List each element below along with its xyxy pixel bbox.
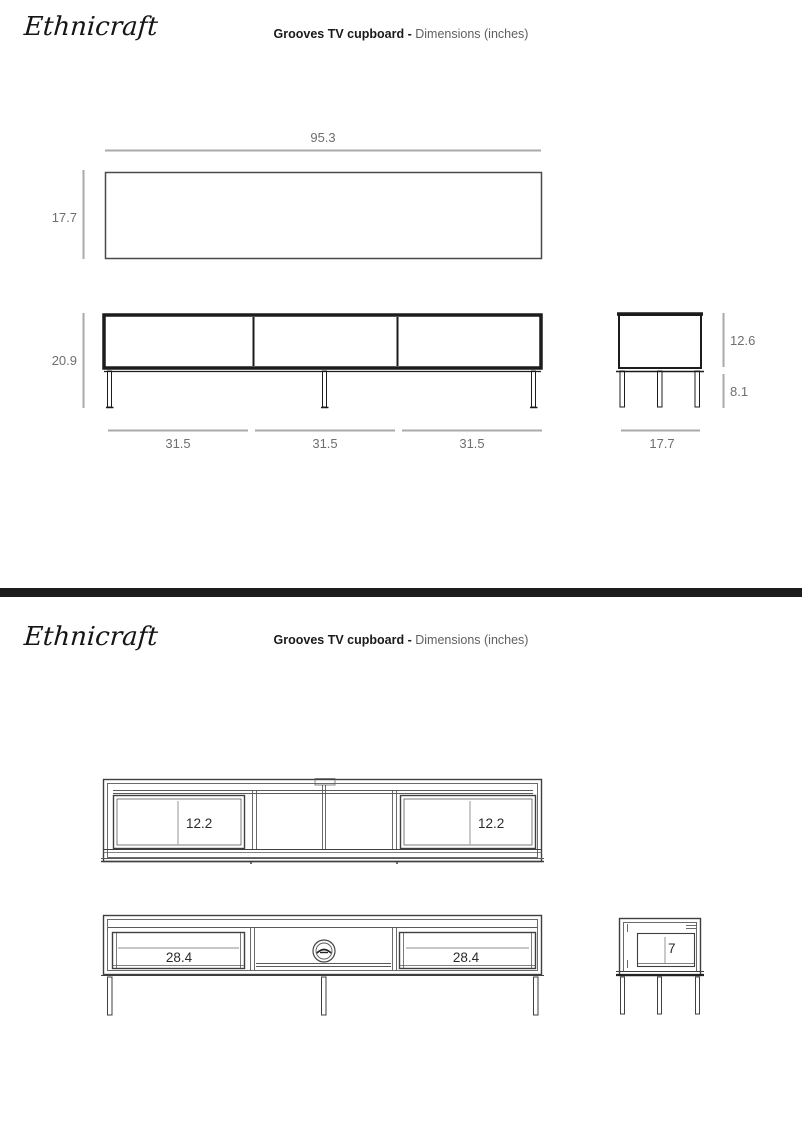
dim-drawer-depth: 12.2 [478, 816, 504, 831]
dim-drawer-width: 28.4 [139, 950, 219, 965]
p2-front-view [101, 916, 544, 1016]
p1-front-view [84, 313, 543, 431]
dim-top-depth: 17.7 [38, 210, 77, 225]
dim-drawer-width: 28.4 [426, 950, 506, 965]
dim-top-width: 95.3 [273, 130, 373, 145]
dim-side-depth: 17.7 [622, 436, 702, 451]
dim-drawer-height: 7 [668, 941, 676, 956]
p1-side-view [616, 313, 724, 431]
dim-side-body-height: 12.6 [730, 333, 755, 348]
spec-sheet: Ethnicraft Grooves TV cupboard - Dimensi… [0, 0, 802, 1146]
dim-drawer-depth: 12.2 [186, 816, 212, 831]
left-drawer-box [114, 796, 245, 849]
technical-drawing [0, 0, 802, 1146]
dim-side-leg-height: 8.1 [730, 384, 748, 399]
p1-top-view [84, 151, 542, 260]
drawer-side [638, 934, 695, 967]
dim-section-width: 31.5 [285, 436, 365, 451]
dim-section-width: 31.5 [138, 436, 218, 451]
right-drawer-box [401, 796, 536, 849]
dim-front-height: 20.9 [38, 353, 77, 368]
p2-side-view [616, 919, 704, 1015]
dim-section-width: 31.5 [432, 436, 512, 451]
